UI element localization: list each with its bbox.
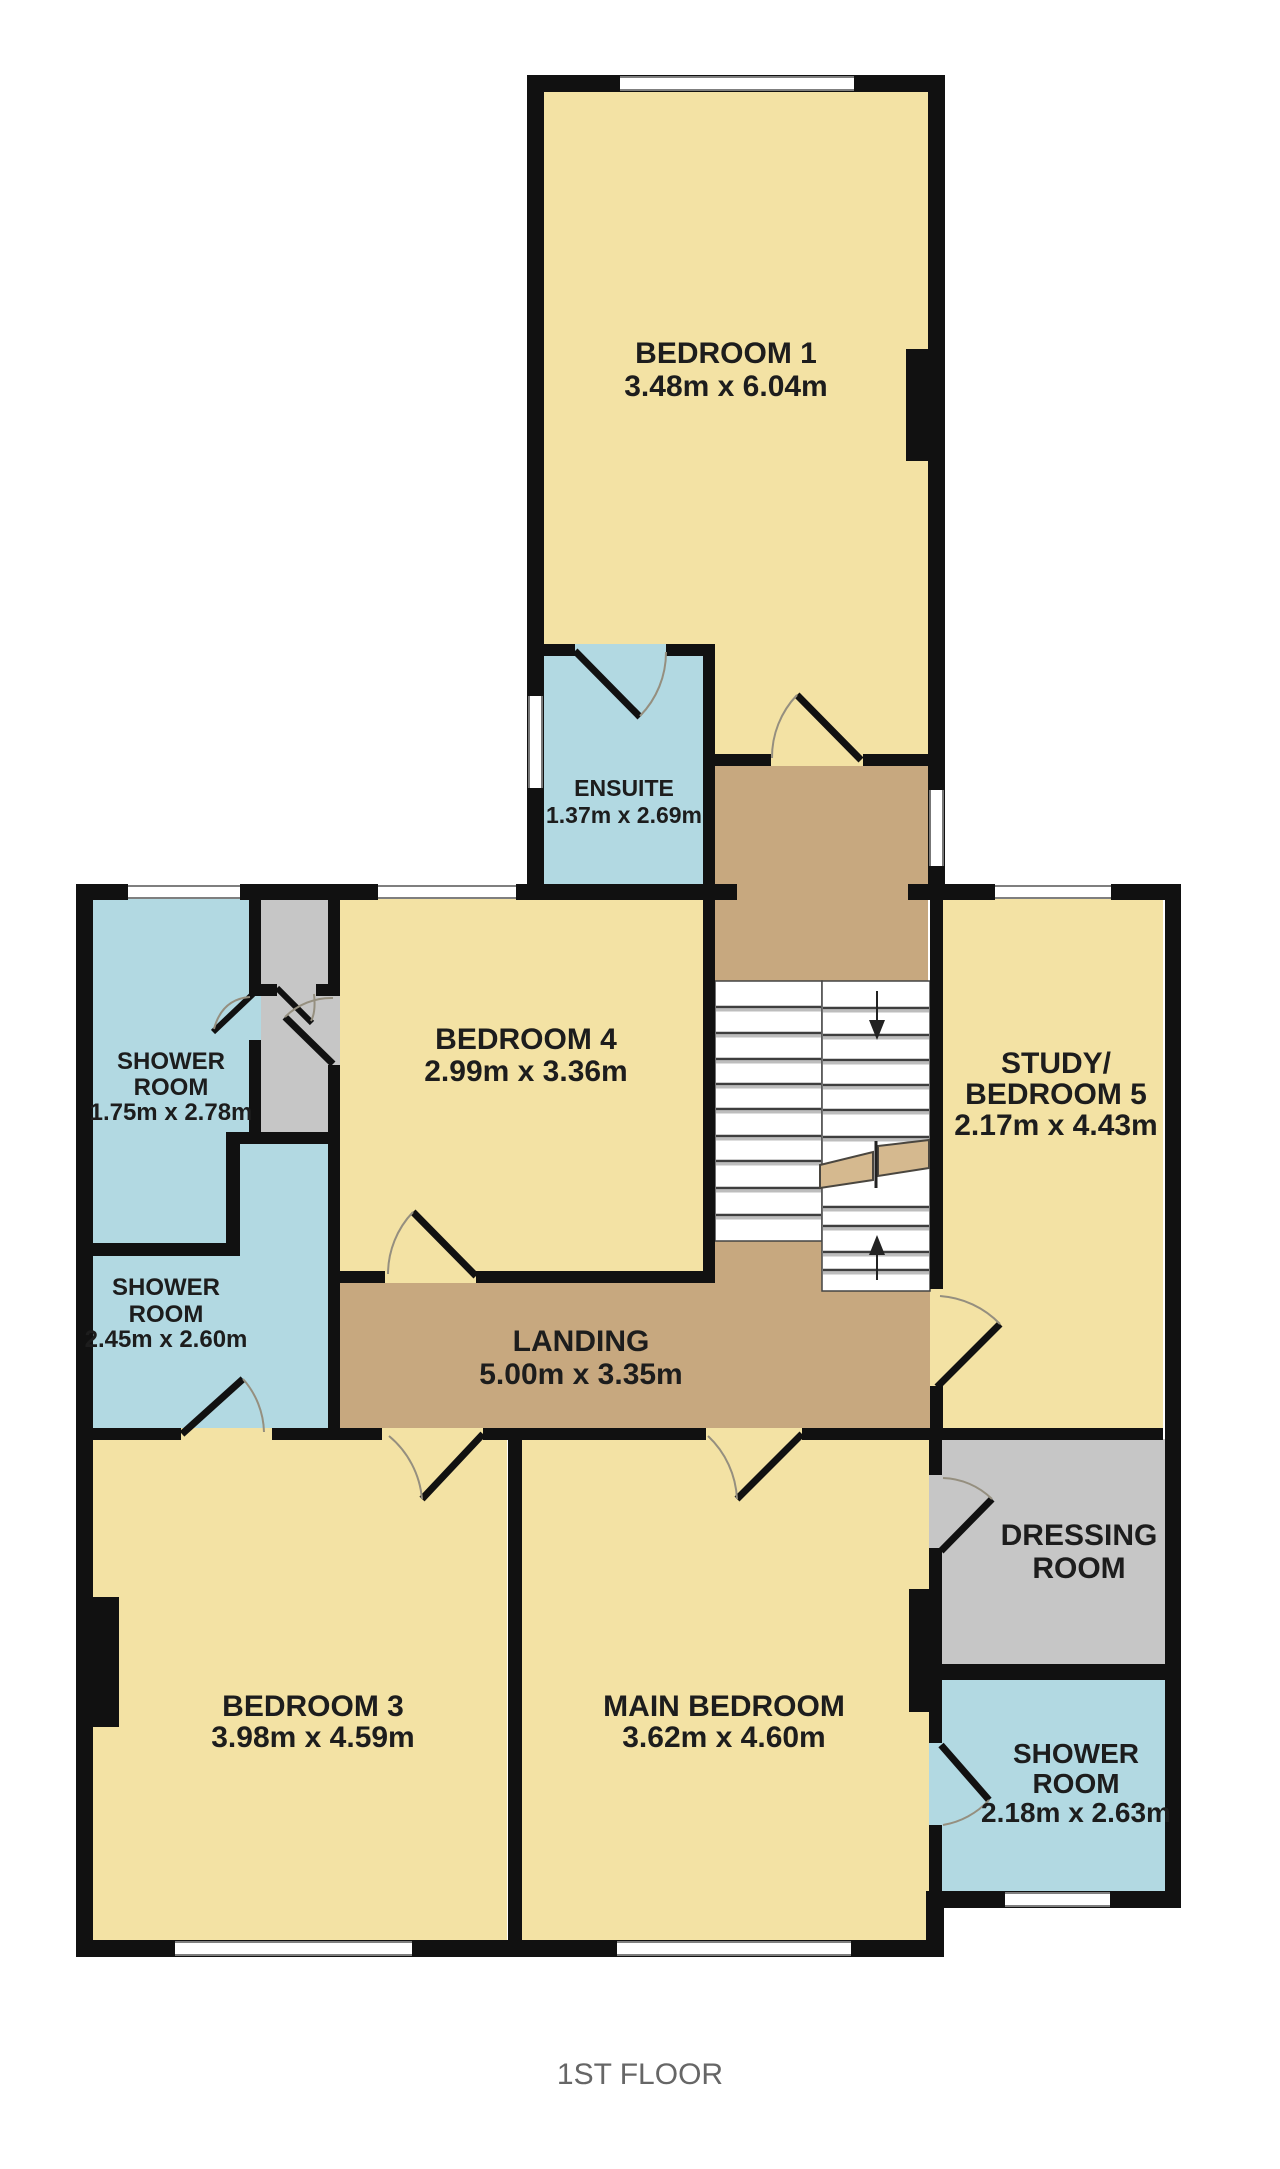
- svg-text:BEDROOM 5: BEDROOM 5: [965, 1078, 1147, 1111]
- svg-text:2.18m x 2.63m: 2.18m x 2.63m: [981, 1797, 1171, 1828]
- svg-text:MAIN BEDROOM: MAIN BEDROOM: [603, 1690, 845, 1723]
- svg-text:SHOWER: SHOWER: [1013, 1738, 1139, 1769]
- svg-text:BEDROOM 1: BEDROOM 1: [635, 337, 817, 370]
- svg-text:ROOM: ROOM: [134, 1074, 209, 1101]
- svg-text:1.75m x 2.78m: 1.75m x 2.78m: [90, 1099, 253, 1126]
- svg-text:3.98m x 4.59m: 3.98m x 4.59m: [211, 1721, 414, 1754]
- svg-text:LANDING: LANDING: [513, 1325, 650, 1358]
- svg-text:2.45m x 2.60m: 2.45m x 2.60m: [85, 1326, 248, 1353]
- svg-text:BEDROOM 4: BEDROOM 4: [435, 1023, 617, 1056]
- svg-text:1.37m x 2.69m: 1.37m x 2.69m: [546, 802, 702, 828]
- svg-text:3.62m x 4.60m: 3.62m x 4.60m: [622, 1721, 825, 1754]
- svg-text:ROOM: ROOM: [1032, 1768, 1119, 1799]
- svg-text:DRESSING: DRESSING: [1001, 1519, 1158, 1552]
- svg-text:5.00m x 3.35m: 5.00m x 3.35m: [479, 1358, 682, 1391]
- svg-text:2.99m x 3.36m: 2.99m x 3.36m: [424, 1055, 627, 1088]
- svg-text:STUDY/: STUDY/: [1001, 1047, 1112, 1080]
- svg-text:ROOM: ROOM: [129, 1301, 204, 1328]
- svg-text:ROOM: ROOM: [1032, 1552, 1125, 1585]
- svg-text:ENSUITE: ENSUITE: [574, 775, 674, 801]
- svg-text:1ST FLOOR: 1ST FLOOR: [557, 2058, 723, 2091]
- svg-text:BEDROOM 3: BEDROOM 3: [222, 1690, 404, 1723]
- svg-text:3.48m x 6.04m: 3.48m x 6.04m: [624, 370, 827, 403]
- svg-text:SHOWER: SHOWER: [112, 1274, 220, 1301]
- svg-text:2.17m x 4.43m: 2.17m x 4.43m: [954, 1109, 1157, 1142]
- svg-text:SHOWER: SHOWER: [117, 1048, 225, 1075]
